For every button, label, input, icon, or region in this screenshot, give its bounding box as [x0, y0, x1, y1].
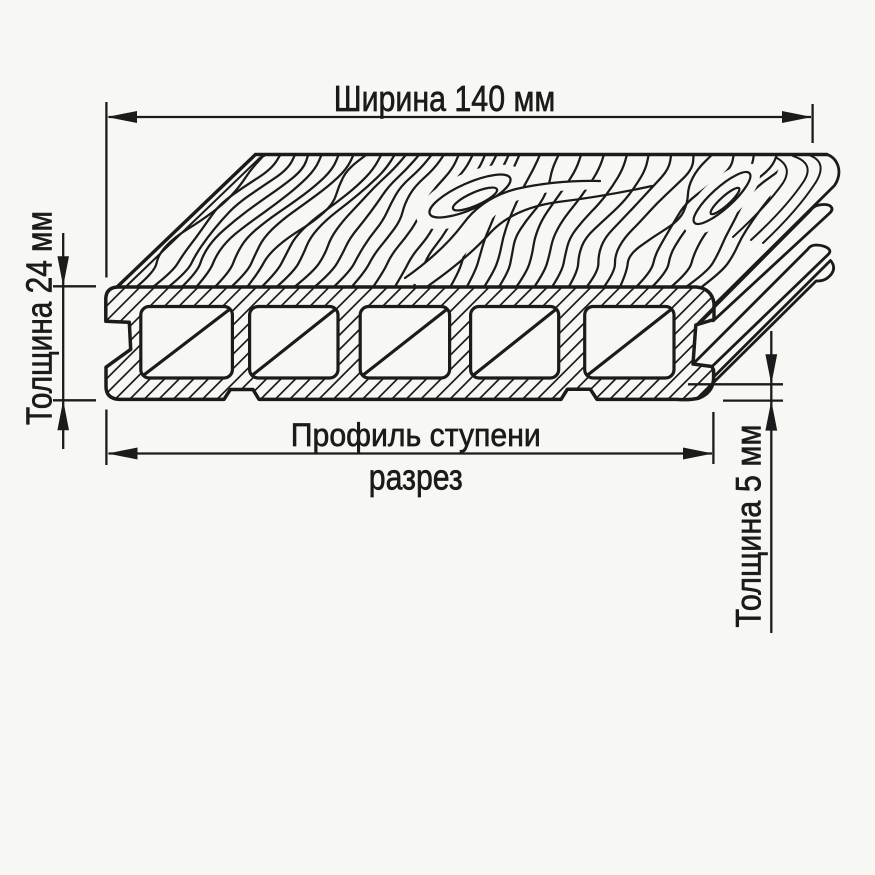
svg-text:разрез: разрез: [369, 457, 463, 498]
svg-text:Профиль ступени: Профиль ступени: [291, 417, 541, 453]
svg-text:Ширина 140 мм: Ширина 140 мм: [334, 78, 556, 119]
svg-text:Толщина 5 мм: Толщина 5 мм: [730, 425, 769, 628]
svg-text:Толщина 24 мм: Толщина 24 мм: [19, 211, 60, 425]
